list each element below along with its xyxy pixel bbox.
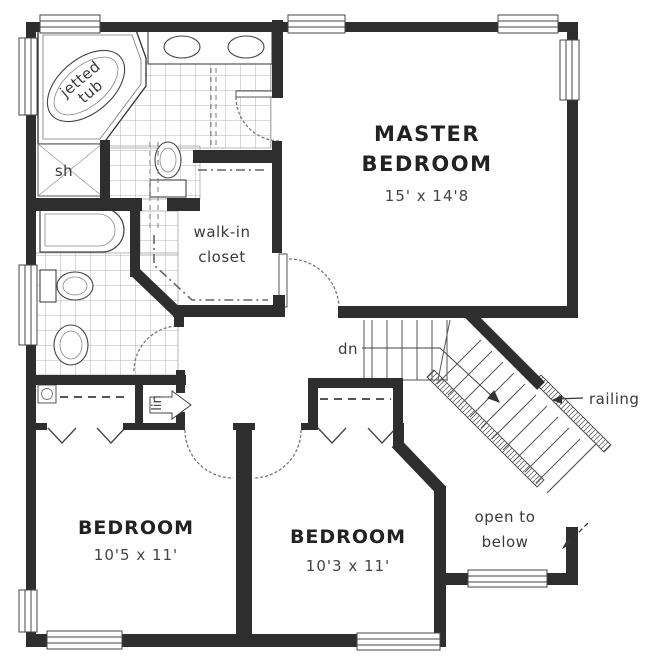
floor-plan-page: jetted tub sh (0, 0, 672, 664)
bedroom-middle-name: BEDROOM (290, 526, 406, 548)
master-bedroom-door-arc (289, 259, 339, 309)
window-left-bath1 (19, 38, 37, 115)
window-open-below (468, 570, 547, 587)
window-left-bath2 (19, 265, 37, 345)
walk-in-closet-label: walk-in closet (194, 223, 251, 266)
floor-plan-drawing: jetted tub sh (0, 0, 672, 664)
shower-stall: sh (38, 144, 102, 196)
bifold-door-icon (368, 428, 396, 443)
bedroom-left-label: BEDROOM 10'5 x 11' (78, 517, 194, 564)
bedroom-middle-dims: 10'3 x 11' (306, 557, 390, 575)
bedroom1-closet (38, 385, 128, 443)
linen-label: lin (150, 395, 165, 410)
bifold-door-icon (97, 428, 125, 443)
bedroom2-closet (318, 399, 396, 443)
window-left-bedroom1 (19, 590, 37, 632)
master-bedroom-name-2: BEDROOM (361, 152, 492, 176)
wall-diagonal-bedroom2 (396, 443, 441, 490)
railing-label: railing (589, 390, 639, 408)
master-bedroom-name-1: MASTER (374, 122, 480, 146)
stair-railing-lower (427, 370, 544, 487)
sink-icon (228, 36, 264, 58)
bifold-door-icon (48, 428, 76, 443)
window-right-master (560, 40, 579, 100)
bifold-door-icon (318, 428, 346, 443)
shower-label: sh (55, 162, 73, 180)
bedroom1-door-arc (185, 430, 233, 478)
bedroom-middle-label: BEDROOM 10'3 x 11' (290, 526, 406, 575)
stair-railing-upper (534, 375, 611, 452)
sink-icon (164, 36, 200, 58)
window-bottom-bedroom1 (47, 631, 122, 649)
toilet-second-bath (40, 270, 93, 302)
stairs-down-label: dn (338, 340, 358, 358)
bathtub-second-bath (40, 208, 124, 252)
window-top-1 (40, 15, 100, 33)
bedroom-left-name: BEDROOM (78, 517, 194, 539)
double-vanity (148, 29, 272, 64)
window-top-3 (498, 15, 558, 33)
bedroom-left-dims: 10'5 x 11' (94, 546, 178, 564)
master-bedroom-label: MASTER BEDROOM 15' x 14'8 (361, 122, 492, 205)
walk-in-closet-label-2: closet (198, 248, 246, 266)
bedroom2-door-arc (253, 430, 301, 478)
window-bottom-bedroom2 (357, 633, 440, 650)
master-bedroom-dims: 15' x 14'8 (385, 187, 469, 205)
open-below-label-1: open to (475, 508, 536, 526)
pedestal-sink (54, 325, 88, 365)
window-top-2 (288, 15, 345, 33)
open-below-label-2: below (482, 533, 529, 551)
wall-diagonal-stairs (466, 311, 541, 386)
walk-in-closet-label-1: walk-in (194, 223, 251, 241)
open-to-below-label: open to below (475, 508, 536, 551)
